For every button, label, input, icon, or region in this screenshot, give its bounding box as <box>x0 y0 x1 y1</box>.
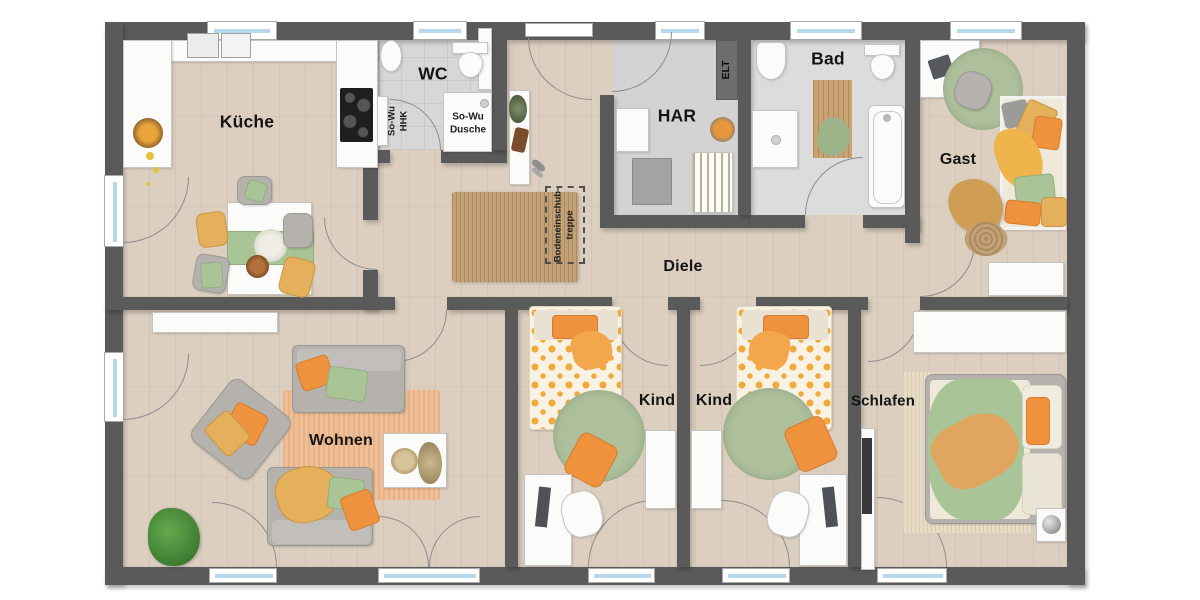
schlafen-garden-door-glass <box>883 574 943 578</box>
wall-schlafen-north-stub <box>861 297 868 310</box>
wohnen-garden-door-glass <box>215 574 273 578</box>
wall-wohnen-north <box>105 297 395 310</box>
kind2-garden-door-glass <box>728 574 786 578</box>
radiator-annotation-line2: HHK <box>399 106 411 136</box>
kind1-garden-door <box>588 568 655 583</box>
kueche-terrace-door <box>104 175 124 247</box>
shower-annotation-line2: Dusche <box>450 124 486 135</box>
schlafen-bed <box>925 374 1066 524</box>
elt-annotation: ELT <box>720 60 734 79</box>
kitchen-counter-left <box>123 40 172 168</box>
har-drying-rack <box>692 152 733 213</box>
har-cabinet <box>616 108 649 152</box>
bathtub-inner <box>873 111 902 204</box>
schlafen-nightstand <box>1036 508 1066 542</box>
elt-annotation-label: ELT <box>720 60 732 79</box>
har-appliance <box>632 158 672 205</box>
bad-window-glass <box>797 29 855 33</box>
wohnen-terrace-door <box>104 352 124 422</box>
wc-sink <box>380 40 402 72</box>
gast-pillow-yellow2 <box>1041 197 1067 227</box>
wohnen-sideboard <box>152 312 278 333</box>
attic-stairs-annotation: Bodeneinschub- treppe <box>553 188 578 262</box>
coffee-table <box>383 433 447 488</box>
kueche-terrace-door-glass <box>113 182 117 242</box>
schlafen-label: Schlafen <box>851 393 915 410</box>
wall-exterior-right <box>1067 22 1085 585</box>
sofa-pillow-green <box>325 365 369 402</box>
wall-wohnen-kind1 <box>505 297 518 567</box>
kitchen-sink <box>187 33 219 58</box>
kind2-label: Kind <box>696 392 732 410</box>
wohnen-label: Wohnen <box>309 432 373 450</box>
wall-bad-south-left <box>751 215 805 228</box>
decor-flowers <box>146 152 154 160</box>
wc-window <box>413 21 467 40</box>
wall-bad-gast <box>905 40 920 230</box>
kitchen-sink-2 <box>221 33 251 58</box>
wc-window-glass <box>419 29 461 33</box>
wall-har-west <box>600 95 614 215</box>
bad-label: Bad <box>811 49 845 70</box>
wohnen-double-door-glass <box>384 574 476 578</box>
gast-label: Gast <box>940 151 976 169</box>
gast-basket <box>965 222 1007 256</box>
wall-gast-south-stub <box>905 228 920 243</box>
attic-stairs-line1: Bodeneinschub- <box>553 188 565 262</box>
dining-chair-east <box>283 213 313 248</box>
kind1-monitor <box>535 486 551 527</box>
kind2-monitor <box>822 486 838 527</box>
wall-kind1-kind2 <box>677 297 690 567</box>
gast-window-glass <box>957 29 1015 33</box>
wohnen-terrace-door-glass <box>113 359 117 417</box>
kind1-garden-door-glass <box>594 574 651 578</box>
coffee-table-grass <box>418 442 442 484</box>
nightstand-lamp <box>1042 515 1061 534</box>
shower-drain <box>480 99 489 108</box>
dining-chair-west <box>195 210 230 249</box>
schlafen-wardrobe <box>913 311 1066 353</box>
coffee-table-bowl <box>391 448 418 474</box>
wohnen-garden-door <box>209 568 277 583</box>
gast-bed <box>1000 96 1066 230</box>
kueche-label: Küche <box>220 112 274 133</box>
schlafen-garden-door <box>877 568 947 583</box>
attic-stairs-line2: treppe <box>565 188 577 262</box>
wall-kind2-north-left <box>690 297 700 310</box>
gast-window <box>950 21 1022 40</box>
bathtub-faucet <box>883 114 891 122</box>
entrance-door <box>525 23 593 37</box>
radiator-annotation: So-Wu HHK <box>387 106 412 136</box>
wall-har-bad <box>738 40 751 215</box>
gast-pillow-orange2 <box>1004 199 1042 227</box>
chair-towel <box>200 261 224 288</box>
dining-chair-north <box>237 176 272 205</box>
wall-wohnen-north-right <box>447 297 505 310</box>
kind1-dresser <box>645 430 676 509</box>
dining-chair-southwest <box>191 252 231 294</box>
chair-cushion <box>243 178 268 203</box>
bad-bathtub <box>868 105 905 208</box>
schlafen-pillow-orange <box>1026 397 1050 445</box>
bad-shower <box>752 110 798 168</box>
har-label: HAR <box>658 106 697 127</box>
sofa-large <box>292 345 405 413</box>
table-bowl <box>246 255 269 278</box>
sofa-small <box>267 467 373 546</box>
wall-har-south <box>600 215 751 228</box>
wall-kind2-schlafen <box>848 297 861 567</box>
bad-shower-drain <box>771 135 781 145</box>
kind2-dresser <box>691 430 722 509</box>
kitchen-cooktop <box>340 88 373 142</box>
wohnen-double-door <box>378 568 480 583</box>
fruit-bowl <box>133 118 163 148</box>
bad-sink <box>756 42 786 80</box>
diele-label: Diele <box>663 258 702 276</box>
kind2-garden-door <box>722 568 790 583</box>
wc-label: WC <box>418 64 448 85</box>
har-laundry-basket <box>710 117 735 142</box>
schlafen-pillow-2 <box>1022 453 1062 515</box>
shower-annotation: So-Wu Dusche <box>450 112 486 137</box>
wall-wc-east <box>492 40 507 150</box>
hall-console-plant <box>509 95 527 123</box>
wall-schlafen-north <box>920 297 1067 310</box>
schlafen-tv <box>862 438 872 514</box>
shower-annotation-line1: So-Wu <box>452 112 483 123</box>
bad-window <box>790 21 862 40</box>
wohnen-plant <box>148 508 200 566</box>
corridor-sideboard <box>988 262 1064 296</box>
floor-plan: So-Wu Dusche So-Wu HHK ELT <box>0 0 1200 600</box>
kind1-label: Kind <box>639 392 675 410</box>
radiator-annotation-line1: So-Wu <box>387 106 399 136</box>
